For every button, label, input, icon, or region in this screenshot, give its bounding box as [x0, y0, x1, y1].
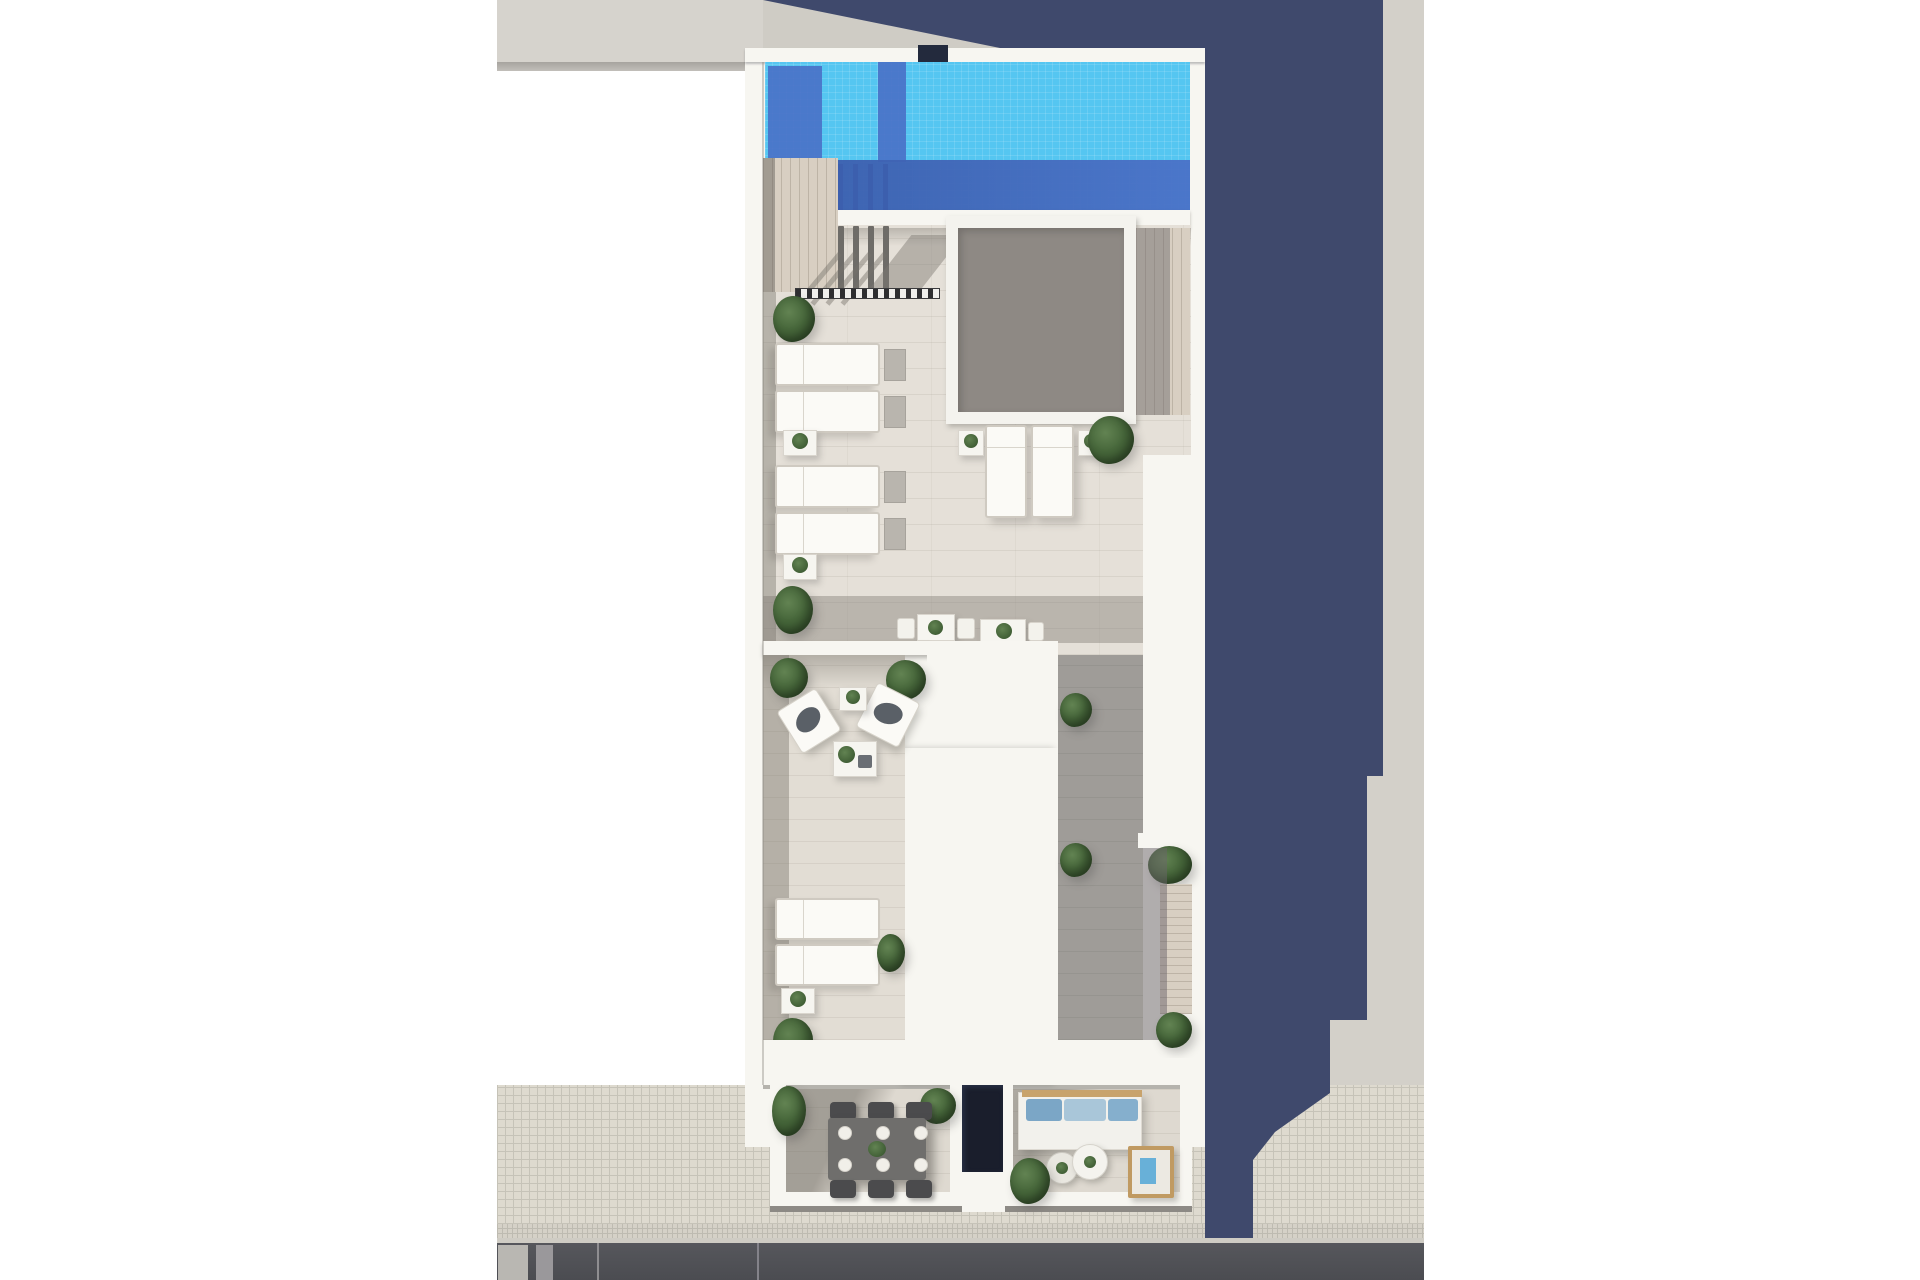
pool-balustrade — [795, 288, 940, 299]
pool-spa-shadow — [768, 66, 822, 162]
neighbor-roof-strip — [497, 0, 763, 64]
plate-5 — [876, 1158, 890, 1172]
roof-block-upper — [927, 641, 1058, 748]
bistro2-chair-right — [1028, 622, 1044, 641]
dining-chair-5 — [868, 1180, 894, 1198]
sun-lounger-2 — [775, 390, 880, 433]
sidewalk-curb-band — [497, 1224, 1424, 1239]
sofa-cushion-3 — [1108, 1099, 1138, 1121]
dining-centerpiece — [868, 1141, 886, 1157]
mid-side-plant-left — [964, 434, 978, 448]
dining-chair-6 — [906, 1180, 932, 1198]
lightwell-sill — [962, 1172, 1003, 1212]
plate-2 — [876, 1126, 890, 1140]
lounger-table-plant-1 — [792, 433, 808, 449]
bistro1-chair-left — [897, 618, 915, 639]
lounger-table-plant-2 — [792, 557, 808, 573]
lounger-side-cube-2 — [884, 396, 906, 428]
pool-rail-shadow-1 — [838, 164, 843, 212]
sun-lounger-3 — [775, 465, 880, 508]
sofa-cushion-1 — [1026, 1099, 1062, 1121]
skylight-opening — [958, 228, 1124, 412]
dining-balcony-edge — [770, 1206, 963, 1212]
plate-4 — [838, 1158, 852, 1172]
plate-6 — [914, 1158, 928, 1172]
round-table-plant-1 — [1056, 1162, 1068, 1174]
sofa-wood-trim — [1022, 1090, 1142, 1097]
sun-lounger-4 — [775, 512, 880, 555]
neighbor-roof-edge — [497, 62, 763, 71]
east-wood-deck-shade — [1143, 848, 1167, 1040]
street-lane-line-2 — [757, 1243, 759, 1280]
street-curb — [497, 1238, 1424, 1243]
parapet-top — [745, 48, 1205, 62]
street-object-light — [498, 1245, 528, 1280]
street-lane-line-1 — [597, 1243, 599, 1280]
pool-rail-shadow-3 — [868, 164, 873, 212]
sun-lounger-5 — [985, 425, 1027, 518]
sun-lounger-8 — [775, 944, 880, 986]
street — [497, 1243, 1424, 1280]
building-left-wall-line — [762, 62, 764, 1085]
east-roof-band — [1143, 455, 1192, 833]
terrace-divider-wall — [763, 641, 930, 655]
upper-floor-south-shade — [763, 596, 1191, 643]
pool-south-shadow-band — [822, 160, 1190, 212]
lounger-towel — [1140, 1158, 1156, 1184]
south-roof-slab — [763, 1040, 1143, 1085]
street-object-gray — [536, 1245, 553, 1280]
pool-wall-shadow-strip — [878, 62, 906, 162]
coffee-table-plant — [838, 746, 855, 763]
bistro1-plant — [928, 620, 943, 635]
coffee-table-tray — [858, 755, 872, 768]
sun-lounger-7 — [775, 898, 880, 940]
lounge-balcony-wall-left — [1003, 1085, 1013, 1173]
plate-3 — [914, 1126, 928, 1140]
lounger-side-cube-3 — [884, 471, 906, 503]
lounge-balcony-edge — [1005, 1206, 1192, 1212]
bistro2-plant — [996, 623, 1012, 639]
round-table-plant-2 — [1084, 1156, 1096, 1168]
lounger-table-plant-3 — [790, 991, 806, 1007]
lightwell — [962, 1085, 1003, 1172]
lounge-side-plant — [846, 690, 860, 704]
pool-rail-shadow-4 — [883, 164, 888, 212]
bistro1-chair-right — [957, 618, 975, 639]
east-band-bottom — [1143, 1058, 1192, 1085]
lounger-side-cube-4 — [884, 518, 906, 550]
roof-block-lower — [905, 748, 1058, 1085]
sofa-cushion-2 — [1064, 1099, 1106, 1121]
neighbor-wall — [497, 71, 745, 1129]
rooftop-render — [0, 0, 1920, 1280]
pool-rail-shadow-2 — [853, 164, 858, 212]
east-wood-walk-shade — [1136, 228, 1170, 415]
lounger-side-cube-1 — [884, 349, 906, 381]
wood-deck-shade — [763, 158, 775, 292]
dining-balcony-wall-bottom — [770, 1192, 963, 1207]
sun-lounger-6 — [1031, 425, 1074, 518]
plate-1 — [838, 1126, 852, 1140]
dining-chair-4 — [830, 1180, 856, 1198]
sun-lounger-1 — [775, 343, 880, 386]
